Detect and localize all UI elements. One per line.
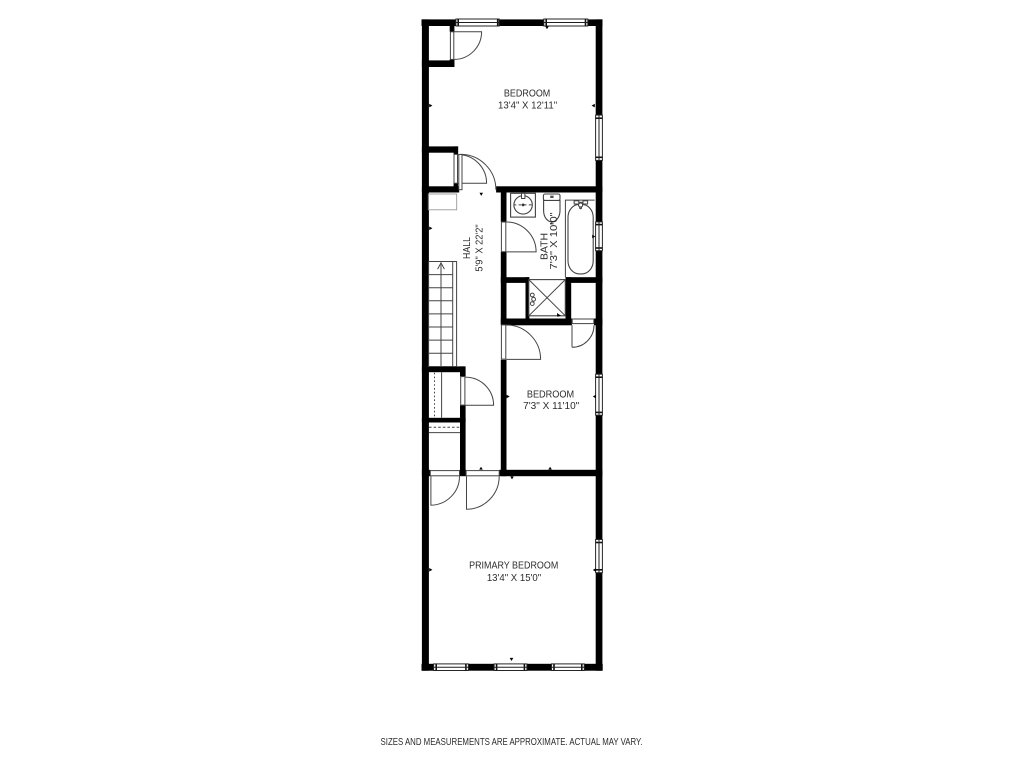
svg-text:BEDROOM: BEDROOM	[527, 389, 574, 400]
svg-text:HALL: HALL	[462, 237, 473, 259]
svg-text:13'4" X 12'11": 13'4" X 12'11"	[498, 100, 557, 111]
svg-text:7'3" X 11'10": 7'3" X 11'10"	[523, 401, 579, 412]
svg-text:13'4" X 15'0": 13'4" X 15'0"	[487, 573, 542, 584]
svg-text:SIZES AND MEASUREMENTS ARE APP: SIZES AND MEASUREMENTS ARE APPROXIMATE. …	[381, 737, 643, 748]
svg-text:PRIMARY BEDROOM: PRIMARY BEDROOM	[469, 561, 558, 572]
svg-text:7'3" X 10'0": 7'3" X 10'0"	[549, 212, 560, 270]
svg-text:5'9" X 22'2": 5'9" X 22'2"	[474, 224, 485, 272]
svg-text:BEDROOM: BEDROOM	[504, 89, 550, 100]
